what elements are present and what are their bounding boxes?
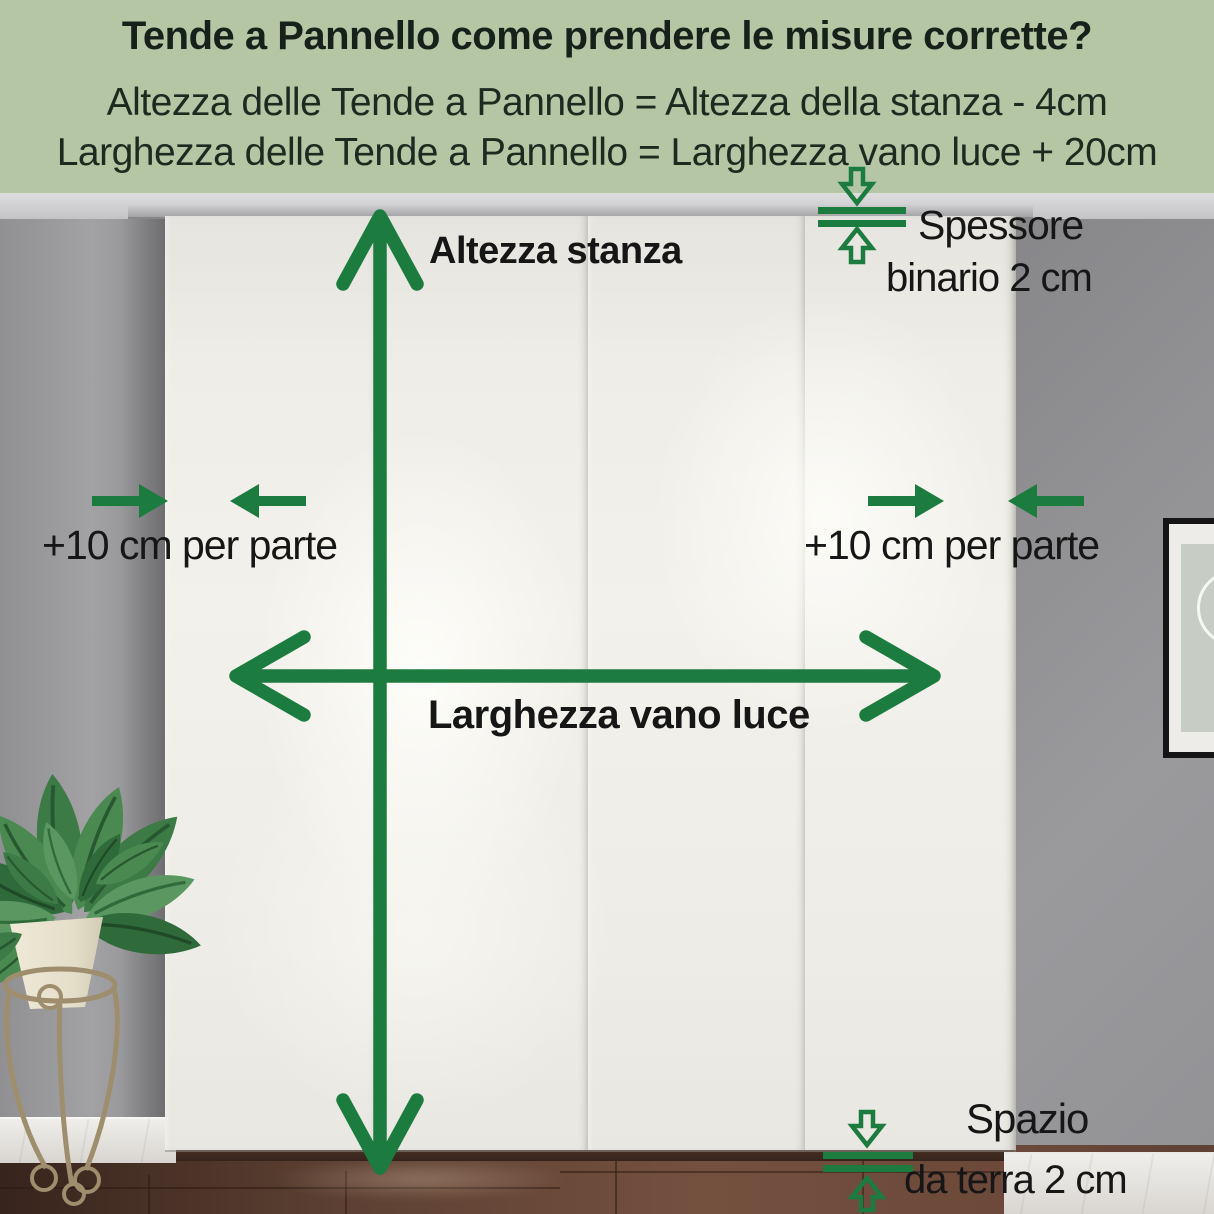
artwork-circle-motif [1197,570,1214,646]
height-formula-text: Altezza delle Tende a Pannello = Altezza… [0,81,1214,125]
grout-line [615,1159,617,1214]
curtain-measurement-infographic: Tende a Pannello come prendere le misure… [0,0,1214,1214]
floor-light-reflection [270,1157,570,1201]
header-banner: Tende a Pannello come prendere le misure… [0,0,1214,193]
curtain-panel-2 [378,216,588,1150]
framed-artwork [1181,544,1214,732]
plant-stand [5,969,117,1204]
grout-line [862,1155,864,1214]
page-title: Tende a Pannello come prendere le misure… [0,14,1214,59]
curtain-panel-4 [805,216,1016,1150]
width-formula-text: Larghezza delle Tende a Pannello = Largh… [0,131,1214,175]
picture-frame [1163,518,1214,758]
room-photo [0,193,1214,1214]
marble-veins [1004,1154,1214,1214]
panel-curtains [165,216,1016,1152]
potted-plant [0,728,263,1214]
curtain-panel-3 [588,216,805,1150]
right-baseboard [1004,1152,1214,1214]
